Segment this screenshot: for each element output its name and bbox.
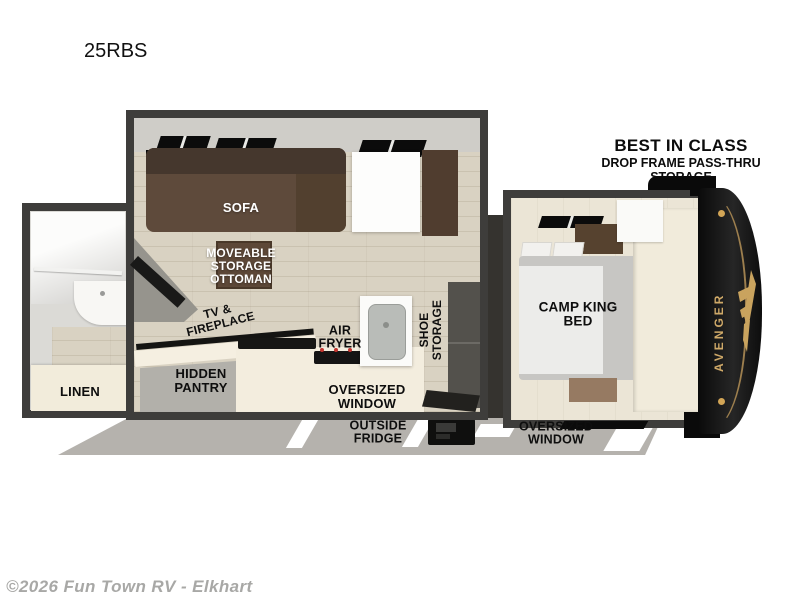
cabinet-brown [422,150,458,236]
dinette-table [352,152,420,232]
bedroom: CAMP KING BED [503,190,715,428]
watermark: ©2026 Fun Town RV - Elkhart [6,577,253,597]
oversized-window-main-label: OVERSIZED WINDOW [329,383,406,411]
front-cap: AVENGER [698,188,762,434]
marker-light [718,210,725,217]
air-fryer-unit [314,351,364,364]
shoe-storage-cabinet [448,282,480,408]
sofa [146,148,346,232]
angled-entertainment-wall [134,238,198,322]
oversized-window-bedroom-label: OVERSIZED WINDOW [519,421,593,448]
outside-fridge-unit [428,419,475,445]
ottoman-label: MOVEABLE STORAGE OTTOMAN [206,247,276,285]
foot-bench [569,378,617,402]
faucet-icon [383,322,389,328]
hidden-pantry-label: HIDDEN PANTRY [174,367,227,395]
shoe-storage-label: SHOE STORAGE [418,300,444,361]
callout-line1: BEST IN CLASS [601,136,760,156]
sink [360,296,412,366]
room-gap [488,215,504,418]
marker-light [718,398,725,405]
outside-fridge-label: OUTSIDE FRIDGE [350,420,407,447]
avenger-eagle-icon [736,268,758,354]
main-room: SOFA MOVEABLE STORAGE OTTOMAN TV & FIREP… [126,110,488,420]
sofa-label: SOFA [223,201,259,215]
fridge-door-detail [436,434,450,439]
page-title: 25RBS [84,40,147,63]
overhead-cabinet [617,200,663,242]
avenger-brand-label: AVENGER [712,250,726,372]
sink-basin [368,304,406,360]
faucet-icon [100,291,105,296]
tv-fireplace-label: TV & FIREPLACE [182,297,256,339]
sofa-backrest [146,148,346,174]
callout-line2: DROP FRAME PASS-THRU [601,156,760,170]
bathroom-vanity [74,281,128,325]
air-fryer-label: AIR FRYER [319,325,362,352]
cooktop-icon [238,338,316,349]
linen-label: LINEN [60,385,100,399]
floorplan-image: 25RBS BEST IN CLASS DROP FRAME PASS-THRU… [0,0,800,600]
camp-king-bed-label: CAMP KING BED [539,301,618,330]
fridge-door-detail [436,423,456,432]
sofa-chaise [296,174,346,232]
speed-stripe [286,420,318,448]
